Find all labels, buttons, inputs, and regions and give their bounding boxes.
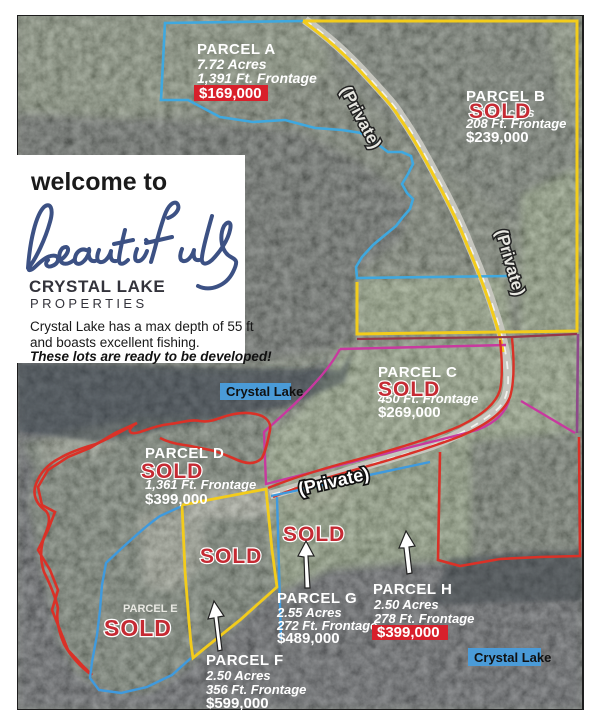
svg-text:$269,000: $269,000 bbox=[378, 404, 441, 421]
svg-text:SOLD: SOLD bbox=[141, 460, 203, 483]
svg-text:1,391 Ft. Frontage: 1,391 Ft. Frontage bbox=[197, 70, 317, 86]
svg-text:These lots are ready to be dev: These lots are ready to be developed! bbox=[30, 349, 272, 364]
svg-text:$399,000: $399,000 bbox=[377, 624, 440, 641]
svg-text:Crystal Lake: Crystal Lake bbox=[226, 384, 303, 399]
svg-text:$489,000: $489,000 bbox=[277, 630, 340, 647]
svg-text:Crystal Lake has a max depth o: Crystal Lake has a max depth of 55 ft bbox=[30, 319, 254, 334]
svg-text:SOLD: SOLD bbox=[104, 615, 172, 641]
svg-text:SOLD: SOLD bbox=[378, 378, 440, 401]
svg-text:$239,000: $239,000 bbox=[466, 129, 529, 146]
svg-text:PARCEL H: PARCEL H bbox=[373, 581, 452, 598]
svg-text:and boasts excellent fishing.: and boasts excellent fishing. bbox=[30, 335, 200, 350]
svg-text:$399,000: $399,000 bbox=[145, 491, 208, 508]
svg-text:2.50 Acres: 2.50 Acres bbox=[373, 597, 439, 612]
svg-text:SOLD: SOLD bbox=[283, 523, 345, 546]
svg-text:PARCEL E: PARCEL E bbox=[123, 603, 178, 615]
svg-text:CRYSTAL LAKE: CRYSTAL LAKE bbox=[29, 277, 165, 296]
svg-text:SOLD: SOLD bbox=[200, 545, 262, 568]
svg-text:$169,000: $169,000 bbox=[199, 85, 262, 102]
svg-text:PARCEL F: PARCEL F bbox=[206, 652, 284, 669]
svg-text:2.50 Acres: 2.50 Acres bbox=[205, 668, 271, 683]
svg-text:PROPERTIES: PROPERTIES bbox=[30, 296, 148, 311]
svg-text:$599,000: $599,000 bbox=[206, 695, 269, 712]
svg-text:welcome to: welcome to bbox=[30, 168, 167, 196]
svg-text:Crystal Lake: Crystal Lake bbox=[474, 650, 551, 665]
svg-text:SOLD: SOLD bbox=[469, 100, 531, 123]
